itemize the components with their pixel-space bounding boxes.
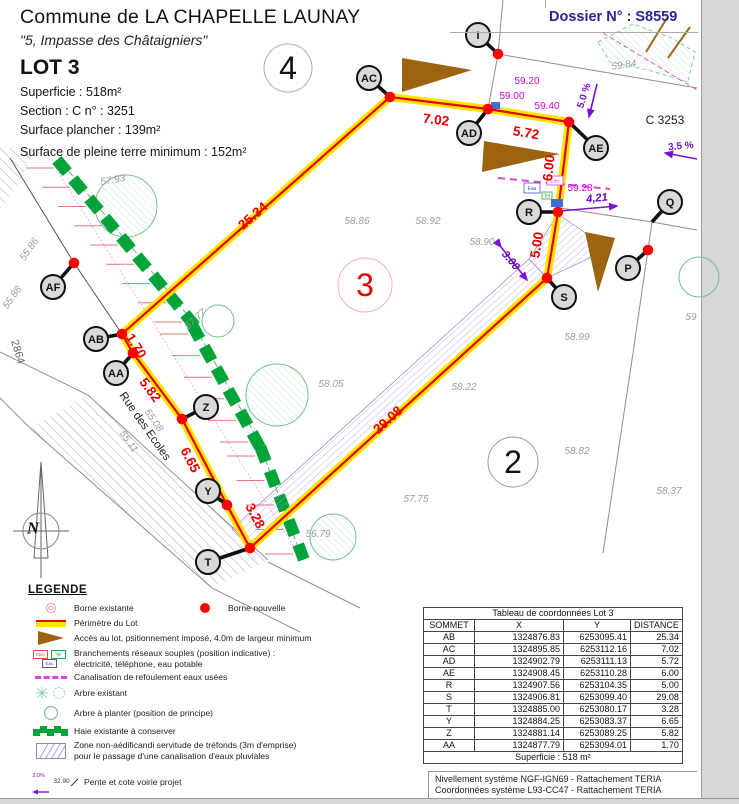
parcel-boundary [652, 222, 697, 230]
table-row: AD1324902.796253111.135.72 [424, 656, 683, 668]
commune-title: Commune de LA CHAPELLE LAUNAY [20, 6, 360, 29]
legend-row-arbre-existant: Arbre existant [28, 685, 426, 701]
legend-row-canalisation: Canalisation de refoulement eaux usées [28, 672, 426, 682]
legend: LEGENDE Borne existante Borne nouvelle P… [28, 584, 426, 804]
borne-nouvelle-dot [493, 49, 504, 60]
table-cell: 6253095.41 [564, 632, 631, 644]
borne-nouvelle-dot [542, 273, 553, 284]
legend-row-branchements: ElecTelEau Branchements réseaux souples … [28, 648, 426, 669]
borne-nouvelle-dot [117, 329, 128, 340]
legend-row-zone: Zone non-aédificandi servitude de tréfon… [28, 740, 426, 761]
table-cell: AB [424, 632, 475, 644]
table-footer: Superficie : 518 m² [424, 752, 683, 764]
legend-label: Borne existante [74, 603, 182, 613]
vertex-id: AD [461, 128, 477, 140]
table-cell: 5.82 [631, 728, 683, 740]
borne-nouvelle-dot [643, 245, 654, 256]
title-block: Commune de LA CHAPELLE LAUNAY "5, Impass… [20, 6, 360, 159]
table-cell: 1324907.56 [475, 680, 564, 692]
table-cell: 25.34 [631, 632, 683, 644]
table-cell: 3.28 [631, 704, 683, 716]
legend-label: Branchements réseaux souples (position i… [74, 648, 275, 658]
table-cell: 6.00 [631, 668, 683, 680]
table-row: AC1324895.856253112.167.02 [424, 644, 683, 656]
table-cell: AD [424, 656, 475, 668]
hedge-square [52, 156, 71, 176]
table-cell: 6253112.16 [564, 644, 631, 656]
legend-label: Haie existante à conserver [74, 726, 176, 736]
table-row: AA1324877.796253094.011.70 [424, 740, 683, 752]
vertex-id: R [525, 207, 533, 219]
table-cell: T [424, 704, 475, 716]
borne-nouvelle-dot [69, 258, 80, 269]
table-cell: S [424, 692, 475, 704]
georeference-note: Nivellement système NGF-IGN69 - Rattache… [428, 771, 697, 798]
servitude-zone-icon [28, 743, 74, 759]
utility-box-label: Eau [528, 186, 537, 192]
vertex-id: AA [108, 368, 124, 380]
table-row: Z1324881.146253089.255.82 [424, 728, 683, 740]
table-cell: 1324884.25 [475, 716, 564, 728]
parcel-circle [338, 258, 392, 312]
table-cell: AC [424, 644, 475, 656]
table-cell: 6253099.40 [564, 692, 631, 704]
table-cell: 1324876.83 [475, 632, 564, 644]
borne-nouvelle-dot [222, 500, 233, 511]
dossier-number: Dossier N° : S8559 [549, 9, 677, 25]
table-cell: 1324895.85 [475, 644, 564, 656]
vertex-id: Z [203, 402, 210, 414]
col-sommet: SOMMET [424, 620, 475, 632]
table-cell: Y [424, 716, 475, 728]
borne-nouvelle-dot [385, 92, 396, 103]
borne-nouvelle-dot [177, 414, 188, 425]
hedge-square [148, 272, 167, 292]
table-cell: 1324906.81 [475, 692, 564, 704]
elec-box-icon: Elec [33, 650, 48, 659]
parcel-boundary [498, 0, 503, 54]
survey-plan-sheet: EauElecTel ABAAZYTAFACADAERSQPI 25.347.0… [0, 0, 739, 804]
vertex-id: AF [46, 282, 61, 294]
table-title: Tableau de coordonnées Lot 3 [424, 608, 683, 620]
table-cell: 6253080.17 [564, 704, 631, 716]
eau-box-icon: Eau [42, 659, 57, 668]
col-x: X [475, 620, 564, 632]
road-hatch [30, 394, 268, 588]
borne-existante-icon [28, 601, 74, 615]
legend-label: Accès au lot, psitionnement imposé, 4.0m… [74, 633, 311, 643]
table-cell: 5.72 [631, 656, 683, 668]
legend-row-haie: Haie existante à conserver [28, 725, 426, 737]
connection-marker [551, 199, 563, 207]
slope-pct-label: 2.0% [32, 773, 45, 779]
table-cell: 1324881.14 [475, 728, 564, 740]
table-cell: AE [424, 668, 475, 680]
hedge-square [223, 387, 241, 407]
hedge-square [199, 344, 217, 364]
surface-pleine-terre: Surface de pleine terre minimum : 152m² [20, 145, 360, 159]
superficie: Superficie : 518m² [20, 85, 360, 99]
table-row: AB1324876.836253095.4125.34 [424, 632, 683, 644]
table-row: AE1324908.456253110.286.00 [424, 668, 683, 680]
vertex-id: Y [204, 486, 212, 498]
table-cell: 1.70 [631, 740, 683, 752]
table-row: Y1324884.256253083.376.65 [424, 716, 683, 728]
legend-label: pour le passage d'une canalisation d'eau… [74, 751, 296, 761]
table-cell: Z [424, 728, 475, 740]
table-row: R1324907.566253104.355.00 [424, 680, 683, 692]
hedge-square [293, 542, 310, 561]
table-cell: 1324885.00 [475, 704, 564, 716]
section: Section : C n° : 3251 [20, 104, 360, 118]
legend-label: Périmètre du Lot [74, 618, 138, 628]
borne-nouvelle-dot [564, 117, 575, 128]
table-row: T1324885.006253080.173.28 [424, 704, 683, 716]
slope-icon: 2.0% 32.90 [28, 764, 84, 800]
coordinates-table-wrap: Tableau de coordonnées Lot 3 SOMMET X Y … [423, 607, 683, 764]
legend-row-bornes: Borne existante Borne nouvelle [28, 601, 426, 615]
hedge-square [264, 469, 281, 488]
legend-label: Canalisation de refoulement eaux usées [74, 672, 227, 682]
borne-nouvelle-dot [483, 104, 494, 115]
tel-box-icon: Tel [51, 650, 66, 659]
lot-title: LOT 3 [20, 56, 360, 80]
vertex-id: AC [361, 73, 377, 85]
legend-row-pente: 2.0% 32.90 Pente et cote voirie projet [28, 764, 426, 800]
coordonnees-note: Coordonnées système L93-CC47 - Rattachem… [435, 785, 697, 796]
table-header-row: SOMMET X Y DISTANCE [424, 620, 683, 632]
existing-tree-icon [28, 685, 74, 701]
col-y: Y [564, 620, 631, 632]
legend-title: LEGENDE [28, 584, 426, 596]
table-cell: R [424, 680, 475, 692]
utility-box-label: Tel [544, 193, 550, 199]
legend-label: Arbre existant [74, 688, 127, 698]
divider [450, 32, 698, 33]
legend-label: Zone non-aédificandi servitude de tréfon… [74, 740, 296, 750]
legend-label: Borne nouvelle [228, 603, 285, 613]
table-cell: 6253094.01 [564, 740, 631, 752]
table-cell: 1324902.79 [475, 656, 564, 668]
col-distance: DISTANCE [631, 620, 683, 632]
access-icon [28, 631, 74, 645]
borne-nouvelle-dot [553, 207, 564, 218]
borne-nouvelle-dot [128, 348, 139, 359]
borne-nouvelle-dot [245, 543, 256, 554]
borne-nouvelle-icon [182, 603, 228, 613]
legend-row-perimetre: Périmètre du Lot [28, 618, 426, 628]
slope-cote-label: 32.90 [53, 778, 69, 785]
hedge-square [132, 252, 151, 272]
legend-row-arbre-planter: Arbre à planter (position de principe) [28, 704, 426, 722]
utility-box-label: Elec [550, 178, 560, 184]
hedge-square [211, 365, 229, 385]
vertex-id: S [560, 292, 567, 304]
table-cell: 7.02 [631, 644, 683, 656]
surface-plancher: Surface plancher : 139m² [20, 123, 360, 137]
legend-label: Arbre à planter (position de principe) [74, 708, 213, 718]
perimeter-icon [28, 620, 74, 627]
table-cell: 6253111.13 [564, 656, 631, 668]
vertex-id: P [624, 263, 631, 275]
coordinates-table: Tableau de coordonnées Lot 3 SOMMET X Y … [423, 607, 683, 764]
table-cell: 6253089.25 [564, 728, 631, 740]
divider [545, 0, 546, 8]
table-cell: 6253110.28 [564, 668, 631, 680]
hedge-icon [28, 725, 74, 737]
address: "5, Impasse des Châtaigniers" [20, 32, 360, 48]
table-cell: 6253104.35 [564, 680, 631, 692]
vertex-id: T [205, 557, 212, 569]
table-cell: AA [424, 740, 475, 752]
table-row: S1324906.816253099.4029.08 [424, 692, 683, 704]
north-arrow [13, 462, 69, 578]
vertex-id: AB [88, 334, 104, 346]
legend-row-acces: Accès au lot, psitionnement imposé, 4.0m… [28, 631, 426, 645]
vertex-id: AE [588, 143, 603, 155]
parcel-boundary [488, 54, 498, 109]
table-cell: 1324877.79 [475, 740, 564, 752]
parcel-circle [488, 437, 538, 487]
vertex-id: Q [666, 197, 675, 209]
table-cell: 6253083.37 [564, 716, 631, 728]
tree-to-plant-icon [28, 704, 74, 722]
table-cell: 29.08 [631, 692, 683, 704]
sewer-line-icon [28, 676, 74, 679]
legend-label: électricité, téléphone, eau potable [74, 659, 275, 669]
nivellement-note: Nivellement système NGF-IGN69 - Rattache… [435, 774, 697, 785]
table-cell: 6.65 [631, 716, 683, 728]
network-boxes-icon: ElecTelEau [28, 650, 74, 668]
table-cell: 1324908.45 [475, 668, 564, 680]
legend-label: Pente et cote voirie projet [84, 777, 181, 787]
table-cell: 5.00 [631, 680, 683, 692]
